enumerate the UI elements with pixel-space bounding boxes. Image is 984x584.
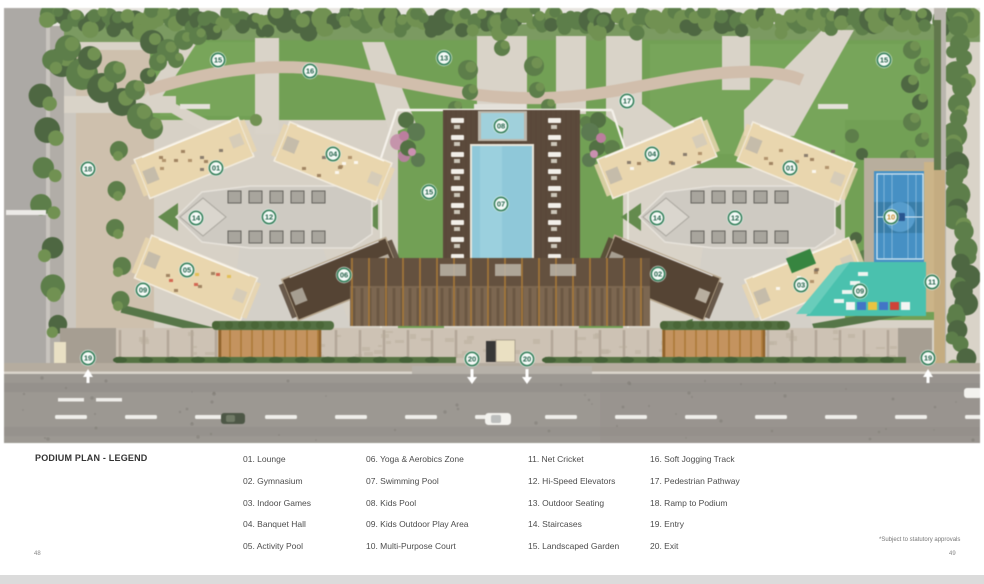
svg-text:16: 16	[306, 67, 314, 76]
svg-text:15: 15	[214, 56, 222, 65]
svg-text:04: 04	[648, 150, 657, 159]
svg-text:12: 12	[265, 213, 273, 222]
svg-text:01: 01	[212, 164, 220, 173]
svg-text:11: 11	[928, 278, 936, 287]
svg-text:15: 15	[880, 56, 888, 65]
svg-text:01: 01	[786, 164, 794, 173]
svg-text:18: 18	[84, 165, 92, 174]
svg-text:14: 14	[653, 214, 662, 223]
svg-text:12: 12	[731, 214, 739, 223]
svg-text:19: 19	[84, 354, 92, 363]
svg-text:13: 13	[440, 54, 448, 63]
svg-text:09: 09	[139, 286, 147, 295]
svg-text:10: 10	[887, 213, 895, 222]
svg-text:17: 17	[623, 97, 631, 106]
svg-text:05: 05	[183, 266, 191, 275]
svg-text:19: 19	[924, 354, 932, 363]
svg-text:03: 03	[797, 281, 805, 290]
svg-text:09: 09	[856, 287, 864, 296]
svg-text:06: 06	[340, 271, 348, 280]
svg-text:14: 14	[192, 214, 201, 223]
svg-text:20: 20	[523, 355, 531, 364]
svg-text:07: 07	[497, 200, 505, 209]
svg-text:02: 02	[654, 270, 662, 279]
svg-text:20: 20	[468, 355, 476, 364]
svg-text:04: 04	[329, 150, 338, 159]
svg-text:08: 08	[497, 122, 505, 131]
svg-text:15: 15	[425, 188, 433, 197]
